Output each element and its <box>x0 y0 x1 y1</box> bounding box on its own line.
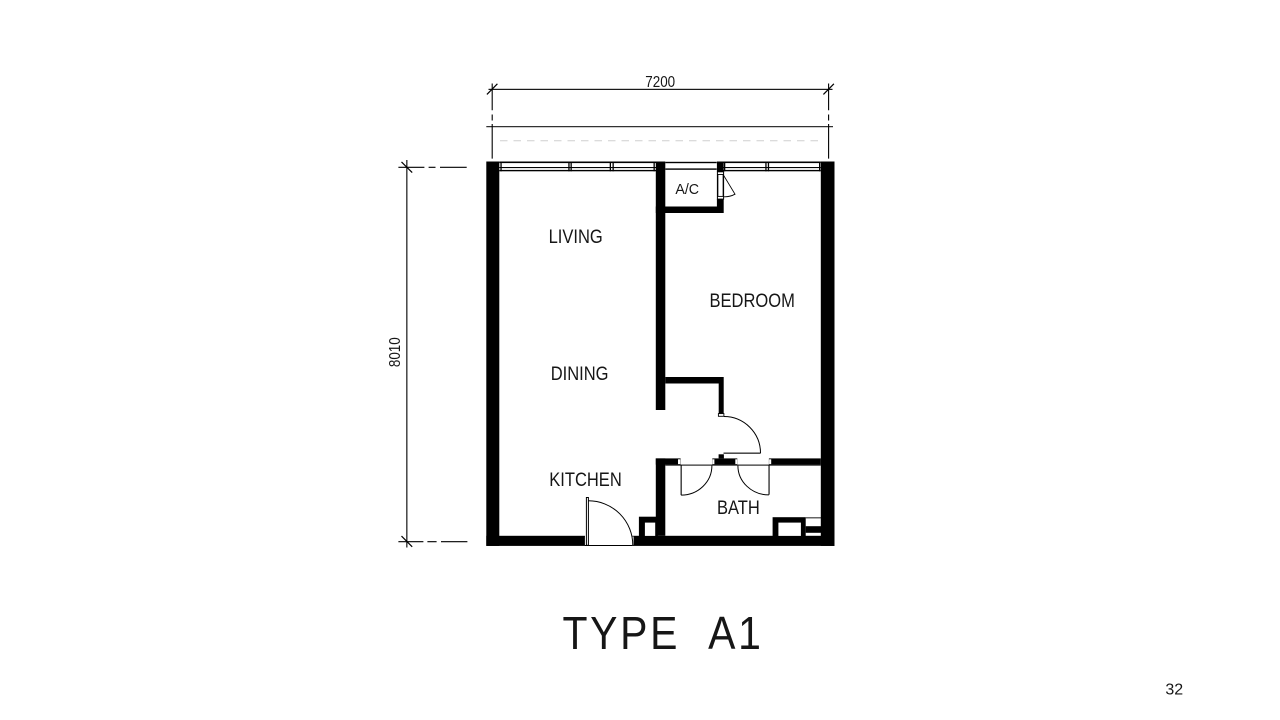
svg-text:BATH: BATH <box>717 497 760 518</box>
svg-text:A/C: A/C <box>675 182 699 198</box>
svg-text:BEDROOM: BEDROOM <box>710 290 795 311</box>
svg-text:DINING: DINING <box>551 363 609 384</box>
svg-text:32: 32 <box>1165 682 1183 699</box>
svg-text:TYPE A1: TYPE A1 <box>562 609 763 660</box>
svg-text:KITCHEN: KITCHEN <box>549 469 622 490</box>
svg-text:7200: 7200 <box>645 74 675 91</box>
svg-text:8010: 8010 <box>387 337 404 367</box>
svg-text:LIVING: LIVING <box>549 226 603 247</box>
